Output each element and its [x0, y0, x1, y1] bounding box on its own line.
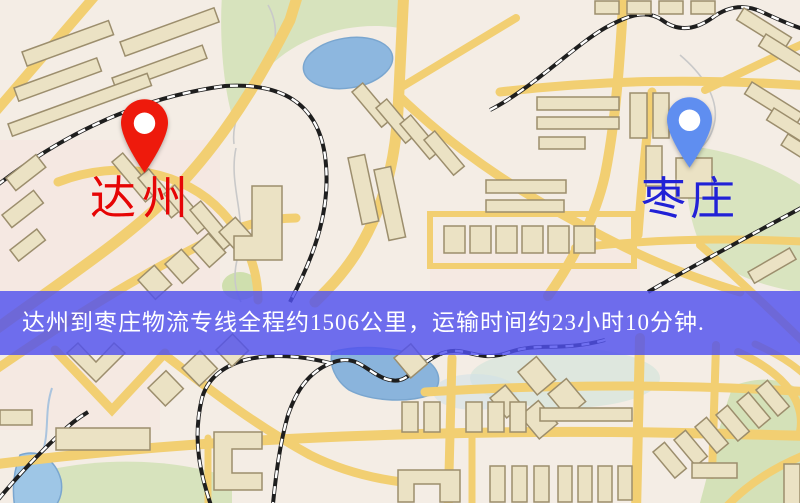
map-background — [0, 0, 800, 503]
map-pin-zaozhuang[interactable] — [667, 97, 712, 168]
city-label-zaozhuang: 枣庄 — [641, 177, 739, 222]
map-screenshot: 达州 枣庄 达州到枣庄物流专线全程约1506公里，运输时间约23小时10分钟. — [0, 0, 800, 503]
map-pin-dazhou[interactable] — [121, 99, 168, 173]
route-info-banner: 达州到枣庄物流专线全程约1506公里，运输时间约23小时10分钟. — [0, 291, 800, 355]
city-label-dazhou: 达州 — [90, 176, 194, 222]
pin-hole — [679, 110, 701, 132]
pin-shape — [121, 99, 168, 173]
pin-hole — [134, 113, 155, 134]
pin-shape — [667, 97, 712, 167]
route-info-text: 达州到枣庄物流专线全程约1506公里，运输时间约23小时10分钟. — [22, 303, 705, 337]
